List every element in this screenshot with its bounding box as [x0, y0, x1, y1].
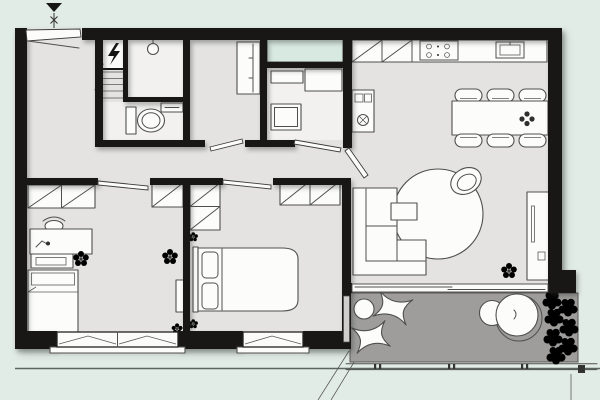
kids-desk [30, 229, 92, 254]
bay-sill-wall [267, 62, 343, 68]
closet-right [152, 183, 183, 207]
balcony-side-table [354, 299, 374, 319]
single-bed [28, 270, 78, 332]
closet-vertical [190, 183, 220, 230]
left-wall [15, 28, 27, 348]
hallway-wall [273, 178, 342, 185]
headboard [193, 247, 198, 312]
tall-oven-unit [352, 90, 374, 132]
entrance-arrow-icon [46, 3, 62, 12]
right-wall [548, 28, 562, 273]
tv-sideboard [527, 192, 549, 280]
drawer-unit [31, 254, 73, 268]
window-bedroom [237, 332, 309, 353]
closet-left [28, 185, 95, 208]
balcony-door-panel [344, 296, 350, 342]
kitchen-counter [352, 40, 547, 62]
balcony [346, 291, 597, 373]
toilet-tank [126, 107, 136, 134]
room-divider-wall [183, 185, 190, 331]
coffee-table [391, 203, 417, 220]
study-shelf [271, 71, 303, 83]
study-glazed-bay [267, 38, 343, 62]
double-bed [193, 247, 298, 312]
study-desk [305, 69, 342, 91]
top-wall [82, 28, 562, 40]
floor-plan-svg [0, 0, 600, 400]
projection-line-1 [318, 351, 349, 400]
dining-chairs-bottom [455, 134, 546, 147]
corner-block [548, 270, 576, 293]
dining-set [452, 89, 548, 147]
dining-chairs-top [455, 89, 546, 102]
floor-plan-page [0, 0, 600, 400]
tall-wardrobe [237, 42, 260, 94]
mattress [198, 248, 298, 311]
closet-room [237, 42, 260, 94]
shower-head-icon [148, 44, 159, 55]
sliding-door-living-balcony [352, 284, 548, 292]
window-kids-room [50, 332, 185, 353]
